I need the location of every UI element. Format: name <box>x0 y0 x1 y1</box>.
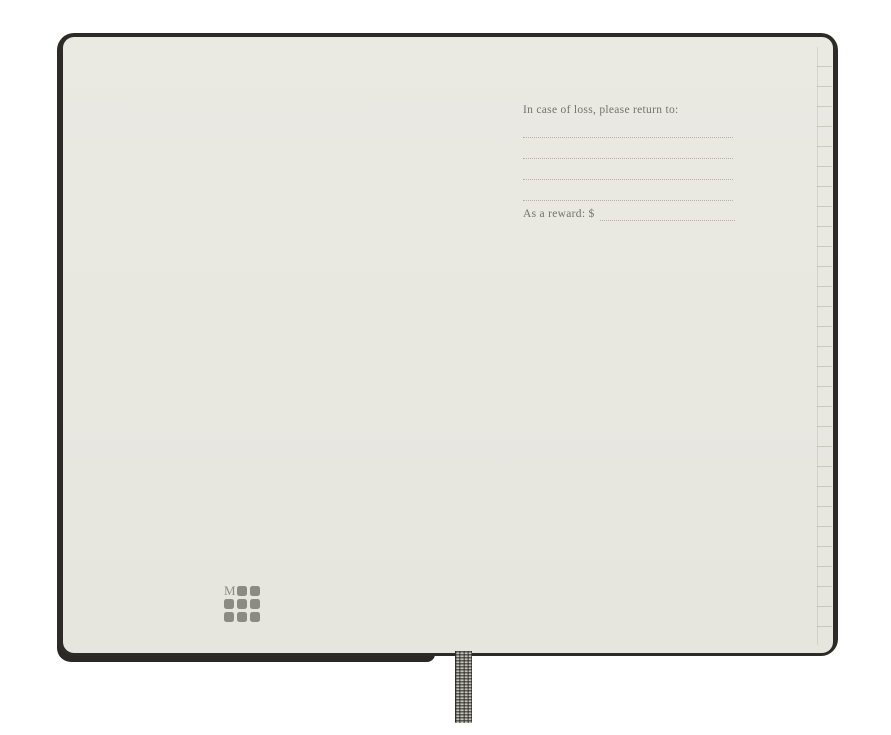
logo-square <box>250 612 260 622</box>
return-prompt-text: In case of loss, please return to: <box>523 104 679 116</box>
logo-square <box>237 586 247 596</box>
reward-writing-line <box>600 207 735 221</box>
writing-line <box>523 117 733 138</box>
logo-square <box>224 599 234 609</box>
logo-square <box>237 599 247 609</box>
logo-letter-m: M <box>224 586 234 596</box>
ribbon-bookmark <box>455 651 472 723</box>
writing-line <box>523 180 733 201</box>
logo-square <box>250 599 260 609</box>
writing-lines <box>523 117 733 201</box>
reward-row: As a reward: $ <box>523 207 735 221</box>
ruled-pages-fore-edge <box>817 47 832 645</box>
reward-prompt-text: As a reward: $ <box>523 208 595 221</box>
photo-backdrop: In case of loss, please return to: As a … <box>0 0 891 735</box>
logo-square <box>224 612 234 622</box>
logo-square <box>250 586 260 596</box>
writing-line <box>523 159 733 180</box>
logo-square <box>237 612 247 622</box>
writing-line <box>523 138 733 159</box>
moleskine-logo: M <box>224 586 260 622</box>
